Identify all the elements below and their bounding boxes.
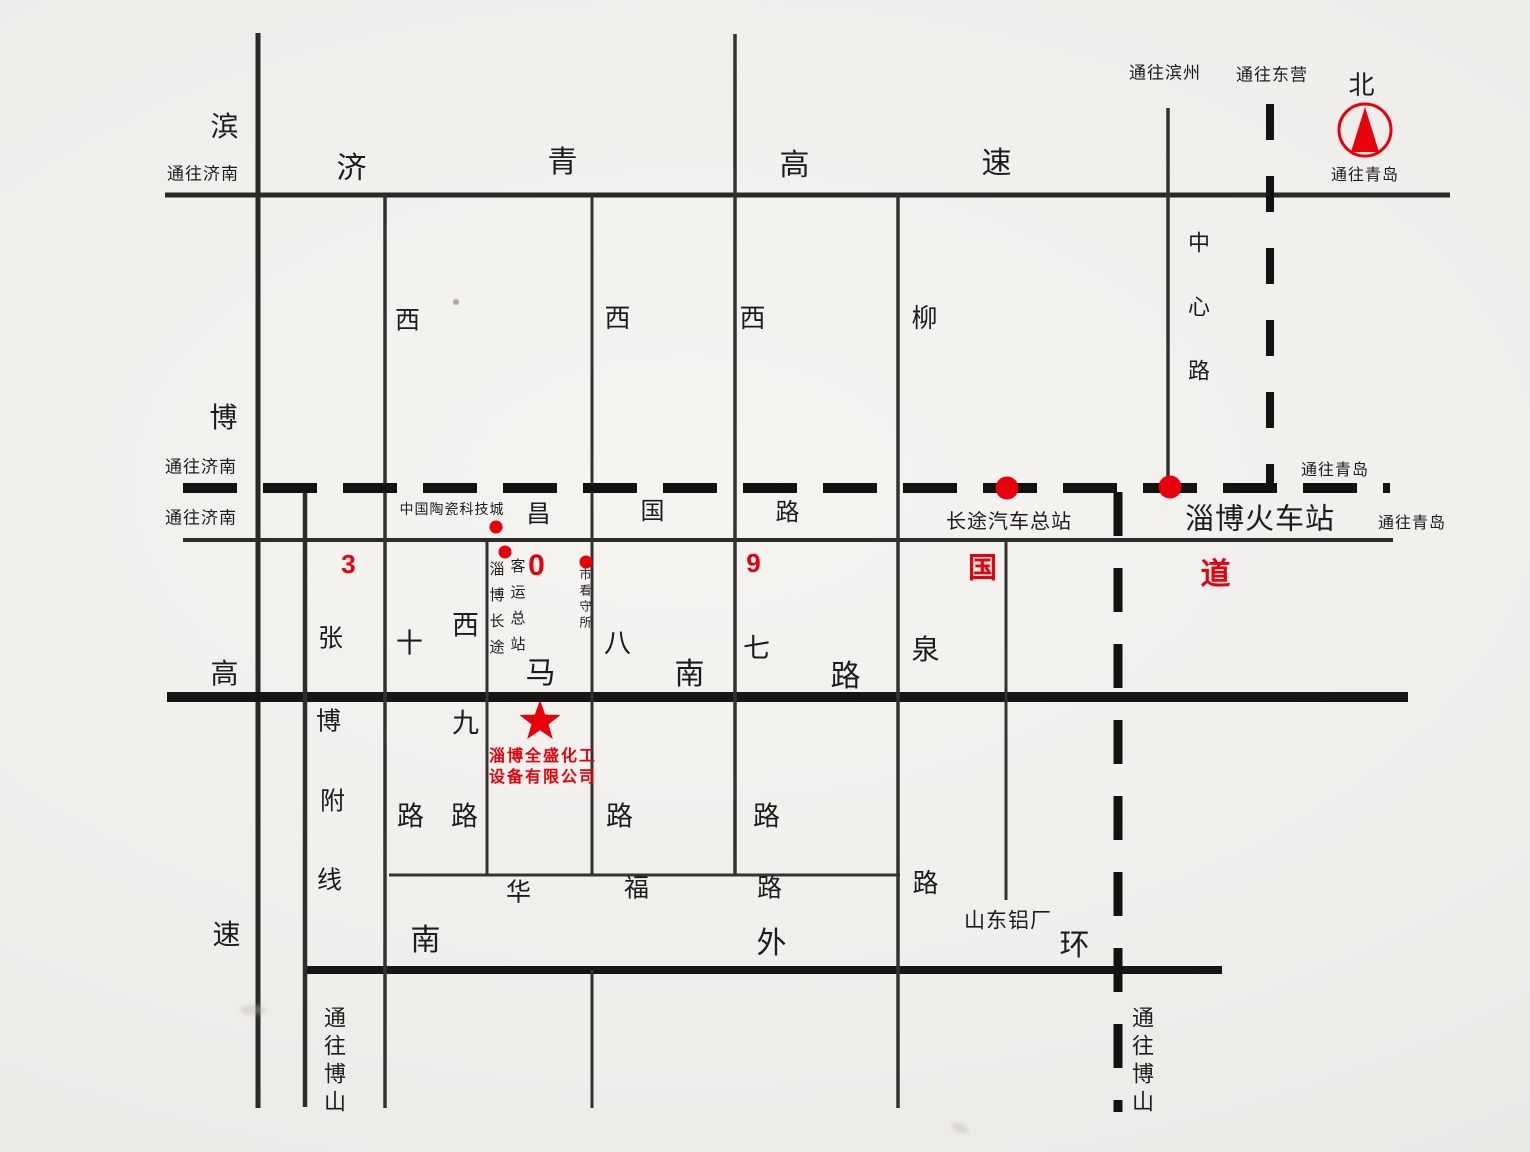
south-ring-char-3: 环 <box>1060 931 1091 961</box>
coach-terminal-label: 长途汽车总站 <box>946 512 1072 532</box>
detention-center-dot <box>580 556 593 569</box>
changguo-road-char-1: 昌 <box>527 503 552 527</box>
to-jinan-railway-label: 通往济南 <box>165 459 237 476</box>
west8-char-3: 路 <box>606 804 634 831</box>
train-station-dot <box>1159 476 1182 499</box>
jiqing-expwy-char-4: 速 <box>982 149 1013 179</box>
route309-char-2: 0 <box>528 551 546 581</box>
ceramics-city-label: 中国陶瓷科技城 <box>400 502 505 516</box>
bus-terminal-label-col1: 淄博长途 <box>489 561 504 665</box>
bus-terminal-dot <box>499 546 512 559</box>
west9-char-1: 西 <box>452 613 480 640</box>
west10-char-1: 西 <box>395 309 421 334</box>
jiqing-expwy-char-1: 济 <box>337 154 368 184</box>
binbo-expwy-char-1: 滨 <box>210 113 239 141</box>
huafu-char-3: 路 <box>757 877 783 902</box>
to-qingdao-railway-label: 通往青岛 <box>1301 463 1369 479</box>
binbo-expwy-char-2: 博 <box>209 404 238 432</box>
train-station-label: 淄博火车站 <box>1185 506 1335 535</box>
manan-char-2: 南 <box>675 660 706 690</box>
zhongxin-road-label: 中心路 <box>1186 231 1208 423</box>
manan-char-3: 路 <box>831 662 862 692</box>
aluminum-plant-label: 山东铝厂 <box>964 911 1052 932</box>
to-jinan-expwy-label: 通往济南 <box>167 166 239 183</box>
west10-char-3: 路 <box>397 804 425 831</box>
to-jinan-changguo-label: 通往济南 <box>165 510 237 527</box>
company-star-marker <box>520 700 561 739</box>
to-qingdao-expwy-label: 通往青岛 <box>1331 168 1399 184</box>
jiqing-expwy-char-2: 青 <box>548 148 579 178</box>
west9-char-3: 路 <box>451 804 479 831</box>
west8-char-1: 西 <box>604 305 631 331</box>
to-boshan-west-label: 通往博山 <box>322 1006 344 1118</box>
liuquan-char-2: 泉 <box>911 636 940 664</box>
detention-center-label: 市看守所 <box>579 568 591 632</box>
north-compass-icon <box>1339 104 1391 156</box>
jiqing-expwy-char-3: 高 <box>780 151 811 181</box>
south-ring-char-1: 南 <box>411 926 442 956</box>
binbo-expwy-char-3: 高 <box>210 660 239 688</box>
west8-char-2: 八 <box>604 631 632 658</box>
changguo-road-char-2: 国 <box>641 500 666 524</box>
changguo-road-char-3: 路 <box>776 501 801 525</box>
binbo-expwy-char-4: 速 <box>212 921 241 949</box>
to-dongying-label: 通往东营 <box>1236 67 1308 84</box>
manan-char-1: 马 <box>526 659 557 689</box>
west9-char-2: 九 <box>452 711 480 738</box>
west7-char-3: 路 <box>753 804 781 831</box>
to-boshan-east-label: 通往博山 <box>1130 1006 1152 1118</box>
liuquan-char-1: 柳 <box>911 305 938 331</box>
zhangbo-char-2: 博 <box>316 710 342 735</box>
liuquan-char-3: 路 <box>912 870 939 896</box>
west10-char-2: 十 <box>396 631 424 658</box>
to-binzhou-label: 通往滨州 <box>1129 65 1201 82</box>
coach-terminal-station-dot <box>996 477 1019 500</box>
north-label: 北 <box>1348 72 1375 98</box>
zibo-location-map: 滨 博 高 速 济 青 高 速 通往济南 通往济南 通往济南 通往滨州 通往东营… <box>0 0 1530 1152</box>
ceramics-city-dot <box>490 521 503 534</box>
zhangbo-char-4: 线 <box>317 869 343 894</box>
company-name-line1: 淄博全盛化工 <box>489 749 597 765</box>
huafu-char-1: 华 <box>506 881 532 906</box>
route309-char-5: 道 <box>1201 560 1232 590</box>
zhangbo-char-1: 张 <box>318 627 344 652</box>
huafu-char-2: 福 <box>624 877 650 902</box>
company-name-line2: 设备有限公司 <box>489 770 597 786</box>
west7-char-1: 西 <box>739 305 766 331</box>
west7-char-2: 七 <box>743 636 771 663</box>
bus-terminal-label-col2: 客运总站 <box>510 558 525 662</box>
route309-char-4: 国 <box>968 555 998 584</box>
route309-char-1: 3 <box>341 551 356 577</box>
south-ring-char-2: 外 <box>757 929 788 959</box>
zhangbo-char-3: 附 <box>320 790 346 815</box>
to-qingdao-changguo-label: 通往青岛 <box>1378 516 1446 532</box>
route309-char-3: 9 <box>746 550 761 576</box>
